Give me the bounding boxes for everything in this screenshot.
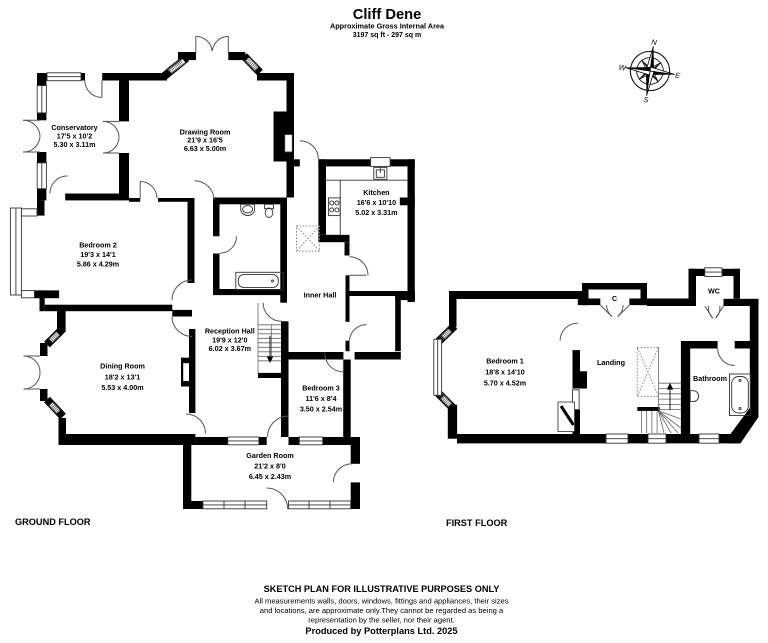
svg-text:C: C bbox=[612, 294, 617, 303]
svg-text:3.50 x 2.54m: 3.50 x 2.54m bbox=[300, 405, 342, 414]
svg-text:5.53 x 4.00m: 5.53 x 4.00m bbox=[101, 383, 143, 392]
svg-text:GROUND FLOOR: GROUND FLOOR bbox=[15, 517, 91, 527]
svg-text:S: S bbox=[643, 95, 649, 105]
svg-text:WC: WC bbox=[708, 287, 720, 296]
svg-text:19'9 x 12'0: 19'9 x 12'0 bbox=[212, 335, 247, 344]
svg-text:3197 sq ft - 297 sq m: 3197 sq ft - 297 sq m bbox=[353, 32, 421, 39]
svg-text:All measurements walls, doors,: All measurements walls, doors, windows, … bbox=[254, 597, 508, 606]
svg-text:Produced by Potterplans Ltd. 2: Produced by Potterplans Ltd. 2025 bbox=[305, 626, 457, 636]
svg-text:6.02 x 3.67m: 6.02 x 3.67m bbox=[209, 344, 251, 353]
svg-text:Bathroom: Bathroom bbox=[693, 374, 727, 383]
svg-text:11'6 x 8'4: 11'6 x 8'4 bbox=[306, 394, 337, 403]
svg-text:5.30 x 3.11m: 5.30 x 3.11m bbox=[54, 140, 96, 149]
svg-text:6.63 x 5.00m: 6.63 x 5.00m bbox=[184, 144, 226, 153]
svg-text:5.86 x 4.29m: 5.86 x 4.29m bbox=[77, 259, 119, 268]
svg-text:N: N bbox=[651, 37, 658, 47]
svg-text:16'6 x 10'10: 16'6 x 10'10 bbox=[357, 198, 396, 207]
svg-text:Garden Room: Garden Room bbox=[246, 451, 294, 460]
svg-text:5.70 x 4.52m: 5.70 x 4.52m bbox=[484, 379, 526, 388]
svg-text:6.45 x 2.43m: 6.45 x 2.43m bbox=[249, 472, 291, 481]
svg-text:Reception Hall: Reception Hall bbox=[205, 327, 255, 336]
svg-text:representation by the seller,: representation by the seller, nor their … bbox=[308, 616, 454, 625]
svg-text:Dining Room: Dining Room bbox=[100, 361, 145, 370]
svg-text:Bedroom 2: Bedroom 2 bbox=[79, 240, 117, 249]
svg-text:Kitchen: Kitchen bbox=[363, 188, 389, 197]
svg-text:FIRST FLOOR: FIRST FLOOR bbox=[446, 518, 508, 528]
svg-text:SKETCH PLAN FOR ILLUSTRATIVE P: SKETCH PLAN FOR ILLUSTRATIVE PURPOSES ON… bbox=[264, 584, 500, 594]
svg-text:21'2 x 8'0: 21'2 x 8'0 bbox=[254, 462, 285, 471]
svg-text:E: E bbox=[675, 71, 682, 81]
svg-text:18'8 x 14'10: 18'8 x 14'10 bbox=[485, 368, 524, 377]
svg-text:Bedroom 1: Bedroom 1 bbox=[486, 357, 524, 366]
svg-text:Landing: Landing bbox=[597, 358, 625, 367]
svg-text:Bedroom 3: Bedroom 3 bbox=[302, 384, 340, 393]
svg-text:19'3 x 14'1: 19'3 x 14'1 bbox=[80, 250, 115, 259]
svg-text:Inner Hall: Inner Hall bbox=[304, 291, 337, 300]
svg-text:18'2 x 13'1: 18'2 x 13'1 bbox=[105, 372, 140, 381]
svg-text:and locations, are approximate: and locations, are approximate only.They… bbox=[260, 606, 504, 615]
svg-text:Approximate Gross Internal Are: Approximate Gross Internal Area bbox=[330, 22, 445, 31]
svg-text:5.02 x 3.31m: 5.02 x 3.31m bbox=[355, 208, 397, 217]
